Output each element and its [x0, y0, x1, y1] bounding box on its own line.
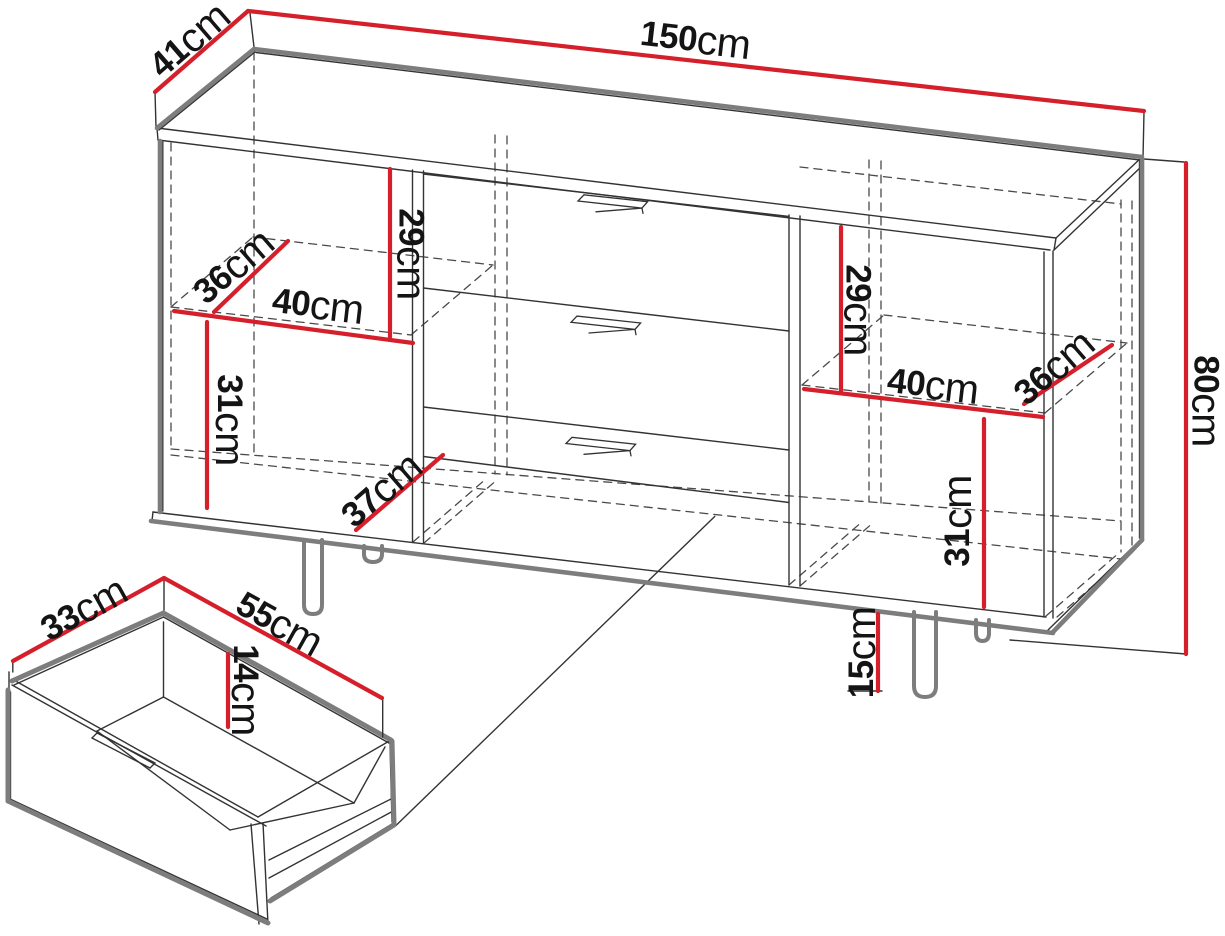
svg-text:29cm: 29cm [389, 208, 435, 300]
svg-text:150cm: 150cm [638, 10, 753, 68]
svg-text:31cm: 31cm [934, 475, 980, 567]
svg-text:15cm: 15cm [838, 607, 884, 699]
svg-text:80cm: 80cm [1184, 355, 1225, 447]
svg-text:31cm: 31cm [207, 374, 253, 466]
svg-text:14cm: 14cm [223, 644, 269, 736]
svg-text:29cm: 29cm [836, 264, 882, 356]
